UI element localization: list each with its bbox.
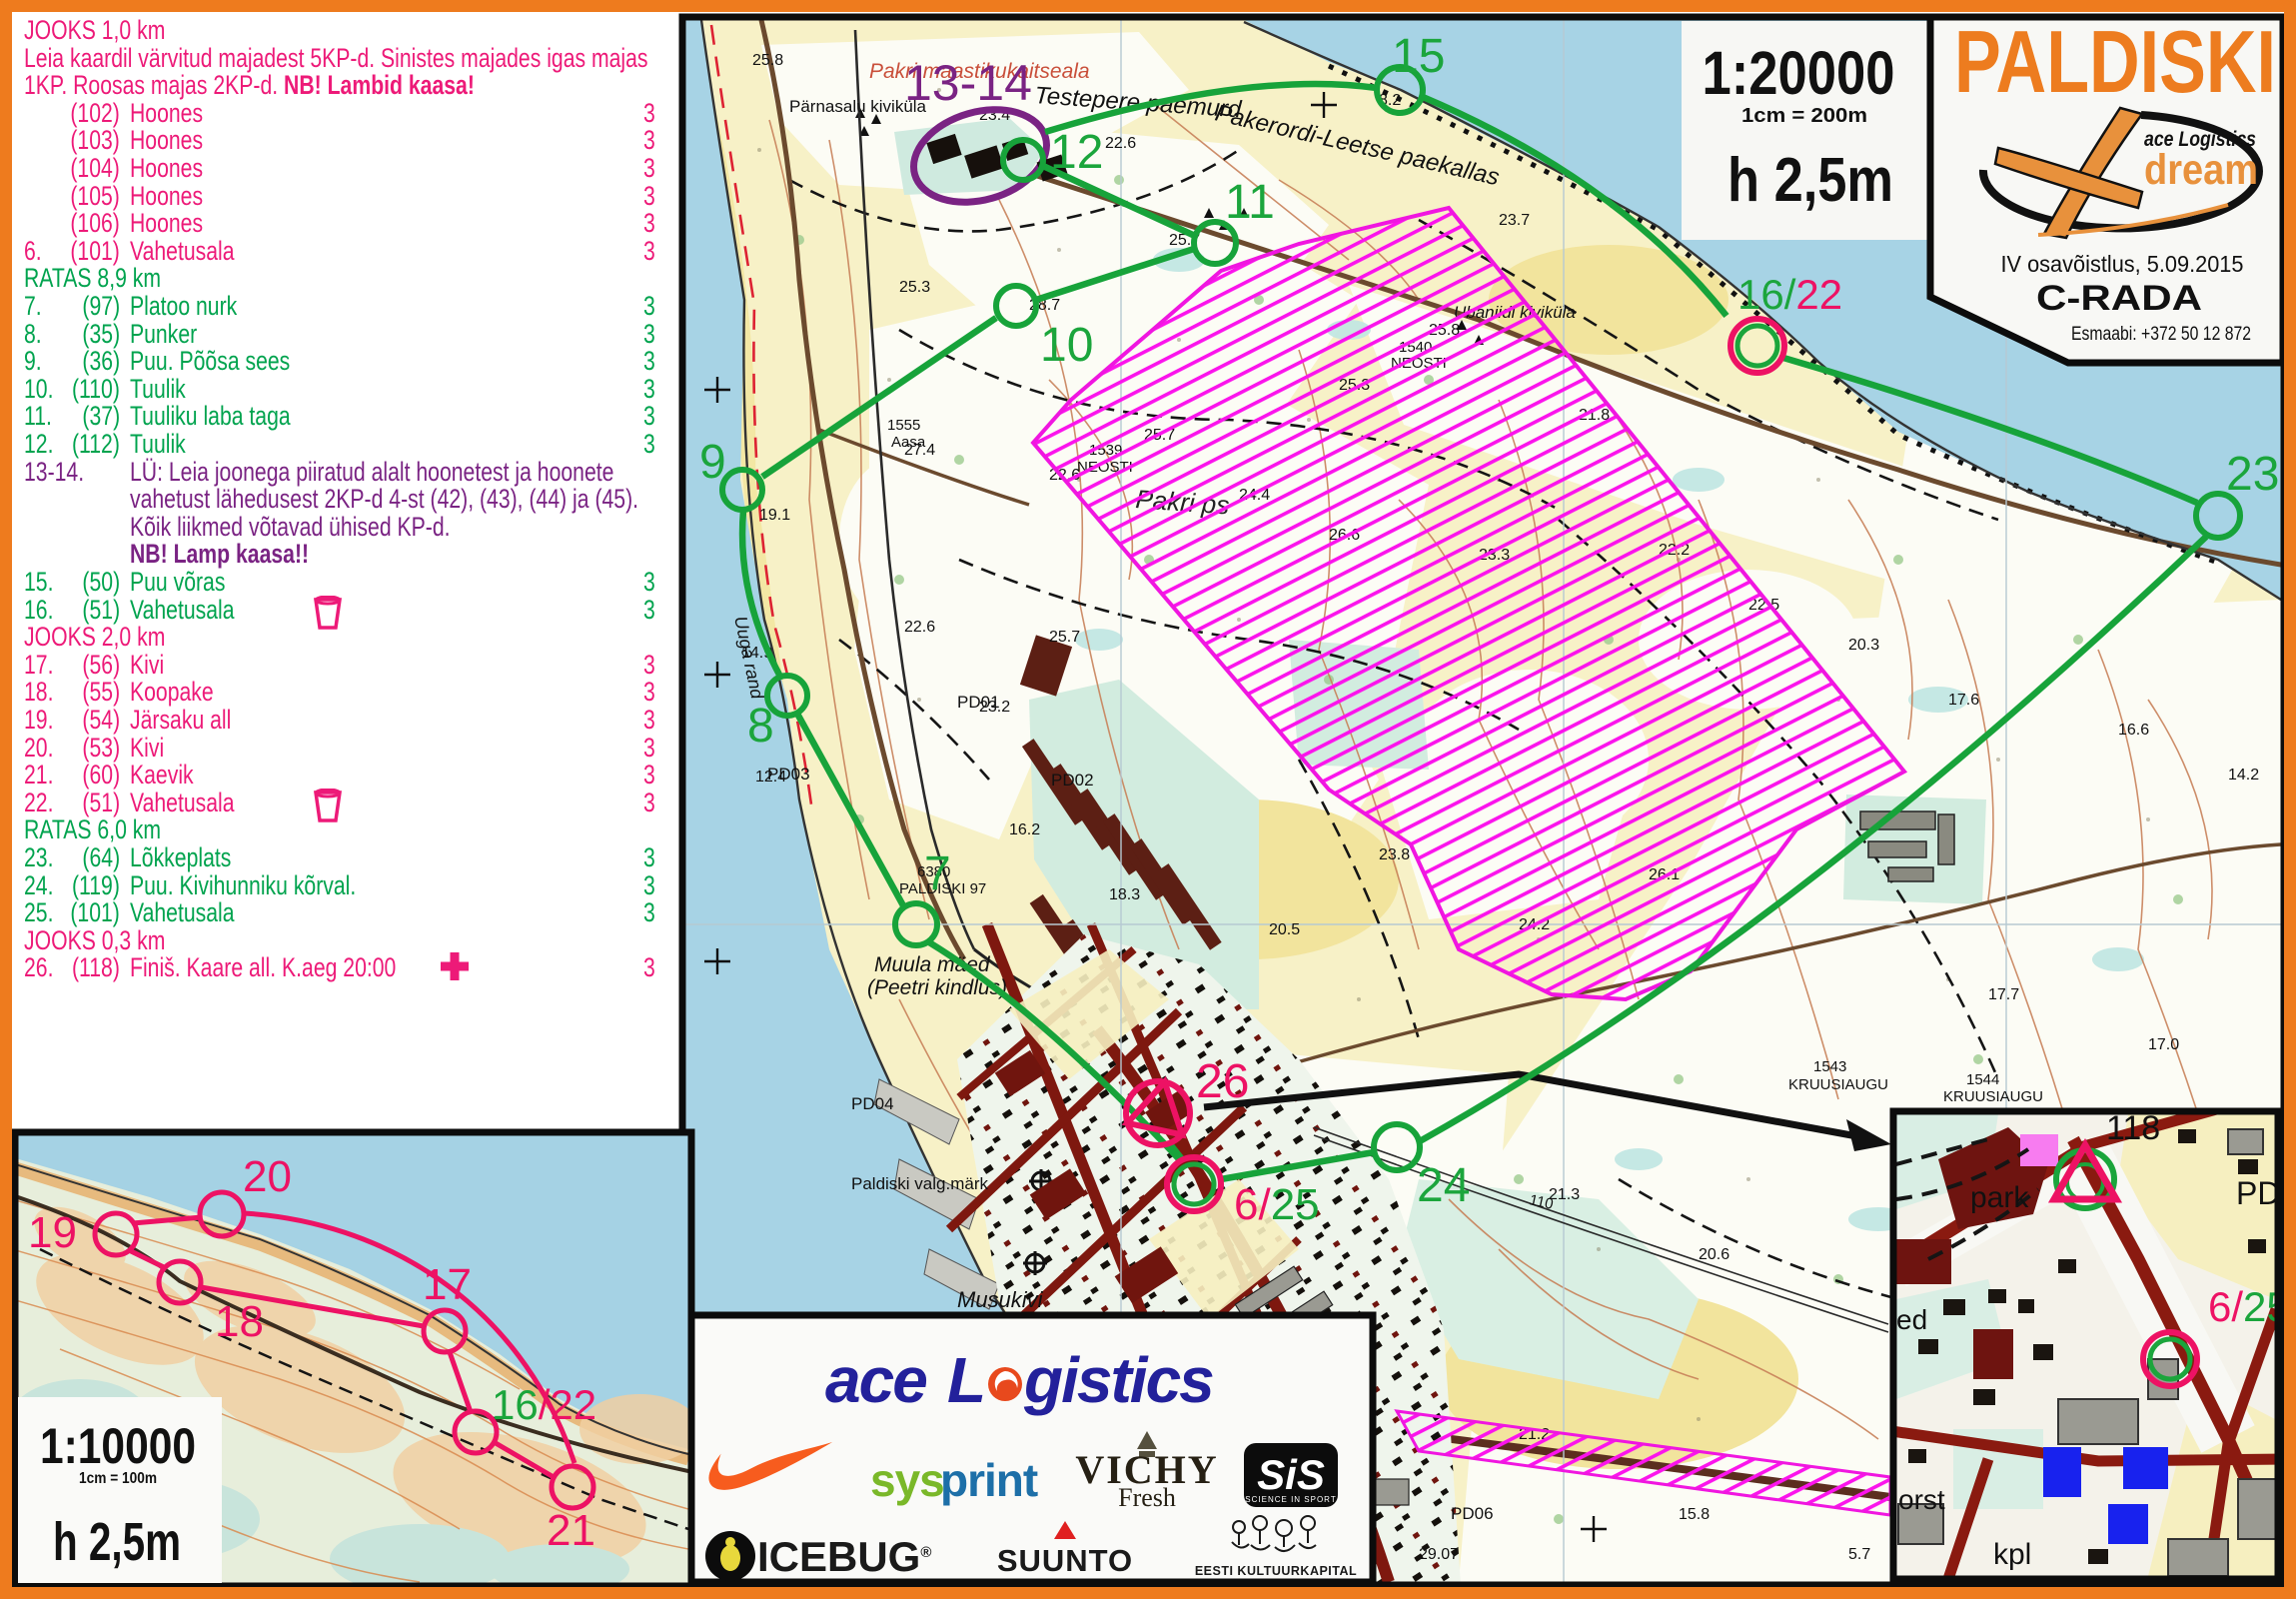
- svg-text:IV osavõistlus, 5.09.2015: IV osavõistlus, 5.09.2015: [2001, 251, 2244, 277]
- svg-text:ed: ed: [1896, 1304, 1927, 1335]
- svg-text:Paldiski valg.märk: Paldiski valg.märk: [851, 1174, 988, 1193]
- svg-text:20.6: 20.6: [1699, 1246, 1729, 1263]
- svg-text:25.8: 25.8: [752, 52, 783, 69]
- svg-text:1544: 1544: [1966, 1071, 1999, 1088]
- svg-text:KRUUSIAUGU: KRUUSIAUGU: [1943, 1088, 2043, 1105]
- svg-text:16.2: 16.2: [1009, 821, 1040, 838]
- svg-text:26: 26: [1196, 1055, 1249, 1108]
- svg-text:19.1: 19.1: [759, 507, 790, 524]
- svg-text:10: 10: [1040, 319, 1093, 372]
- svg-text:7: 7: [924, 847, 951, 900]
- svg-text:16/22: 16/22: [1737, 271, 1842, 318]
- svg-text:16/22: 16/22: [492, 1381, 596, 1428]
- svg-text:kpl: kpl: [1993, 1538, 2031, 1571]
- svg-text:29.07: 29.07: [1419, 1546, 1459, 1563]
- svg-text:22.6: 22.6: [1105, 135, 1136, 152]
- svg-text:PD02: PD02: [1051, 771, 1094, 790]
- svg-text:ICEBUG®: ICEBUG®: [757, 1533, 931, 1580]
- svg-text:SiS: SiS: [1257, 1451, 1325, 1498]
- svg-text:SCIENCE IN SPORT: SCIENCE IN SPORT: [1245, 1495, 1336, 1504]
- svg-text:6/25: 6/25: [1234, 1180, 1320, 1229]
- svg-text:print: print: [940, 1454, 1038, 1506]
- svg-text:1:10000: 1:10000: [40, 1418, 196, 1474]
- svg-text:12: 12: [1050, 126, 1103, 179]
- svg-text:13-14: 13-14: [904, 55, 1032, 111]
- svg-text:14.2: 14.2: [2228, 767, 2259, 784]
- svg-text:park: park: [1970, 1181, 2029, 1214]
- svg-text:22.6: 22.6: [904, 619, 935, 636]
- svg-text:18: 18: [215, 1297, 264, 1346]
- svg-text:C-RADA: C-RADA: [2036, 279, 2202, 318]
- svg-text:1cm = 100m: 1cm = 100m: [79, 1470, 157, 1487]
- svg-text:dream: dream: [2144, 146, 2258, 194]
- svg-text:L: L: [947, 1344, 985, 1416]
- svg-text:Esmaabi: +372 50 12 872: Esmaabi: +372 50 12 872: [2071, 324, 2251, 345]
- svg-text:15: 15: [1392, 30, 1445, 83]
- svg-text:12.4: 12.4: [755, 769, 786, 786]
- svg-text:Fresh: Fresh: [1118, 1483, 1176, 1512]
- svg-text:20.5: 20.5: [1269, 921, 1300, 938]
- svg-text:ace: ace: [825, 1344, 926, 1416]
- svg-text:25.7: 25.7: [1049, 629, 1080, 646]
- svg-text:23.7: 23.7: [1499, 212, 1530, 229]
- svg-text:20: 20: [243, 1152, 292, 1201]
- svg-text:17.6: 17.6: [1948, 692, 1979, 709]
- svg-text:23: 23: [2226, 448, 2279, 501]
- svg-text:PD04: PD04: [851, 1094, 894, 1113]
- svg-text:1cm = 200m: 1cm = 200m: [1741, 105, 1867, 127]
- svg-text:19: 19: [28, 1208, 77, 1257]
- svg-text:PD06: PD06: [1451, 1504, 1494, 1523]
- svg-text:25.3: 25.3: [899, 279, 930, 296]
- svg-text:118: 118: [2106, 1109, 2160, 1147]
- svg-text:27.4: 27.4: [904, 442, 935, 459]
- svg-text:17: 17: [423, 1260, 472, 1309]
- svg-text:17.0: 17.0: [2148, 1036, 2179, 1053]
- svg-text:KRUUSIAUGU: KRUUSIAUGU: [1788, 1076, 1888, 1093]
- svg-text:8: 8: [747, 700, 774, 753]
- svg-text:sys: sys: [870, 1454, 944, 1506]
- svg-text:16.6: 16.6: [2118, 722, 2149, 739]
- svg-text:Musukivi: Musukivi: [957, 1287, 1044, 1312]
- svg-text:h 2,5m: h 2,5m: [1727, 146, 1893, 215]
- svg-text:11: 11: [1225, 176, 1275, 229]
- svg-text:23.2: 23.2: [979, 699, 1010, 716]
- svg-text:gistics: gistics: [1023, 1344, 1213, 1416]
- svg-text:20.3: 20.3: [1848, 637, 1879, 654]
- svg-text:18.3: 18.3: [1109, 886, 1140, 903]
- svg-text:17.7: 17.7: [1988, 986, 2019, 1003]
- svg-text:1:20000: 1:20000: [1703, 39, 1895, 107]
- svg-text:1555: 1555: [887, 417, 920, 434]
- svg-text:9: 9: [699, 436, 726, 489]
- svg-text:15.8: 15.8: [1679, 1506, 1710, 1523]
- svg-text:24: 24: [1417, 1159, 1470, 1212]
- svg-text:orst: orst: [1898, 1484, 1945, 1515]
- svg-text:5.7: 5.7: [1848, 1546, 1870, 1563]
- svg-text:h 2,5m: h 2,5m: [53, 1512, 181, 1572]
- svg-text:EESTI KULTUURKAPITAL: EESTI KULTUURKAPITAL: [1195, 1564, 1357, 1578]
- svg-text:PALDISKI: PALDISKI: [1954, 12, 2276, 111]
- svg-text:SUUNTO: SUUNTO: [997, 1543, 1133, 1578]
- svg-text:1543: 1543: [1813, 1058, 1846, 1075]
- svg-text:23.8: 23.8: [1379, 846, 1410, 863]
- svg-text:21: 21: [547, 1506, 595, 1555]
